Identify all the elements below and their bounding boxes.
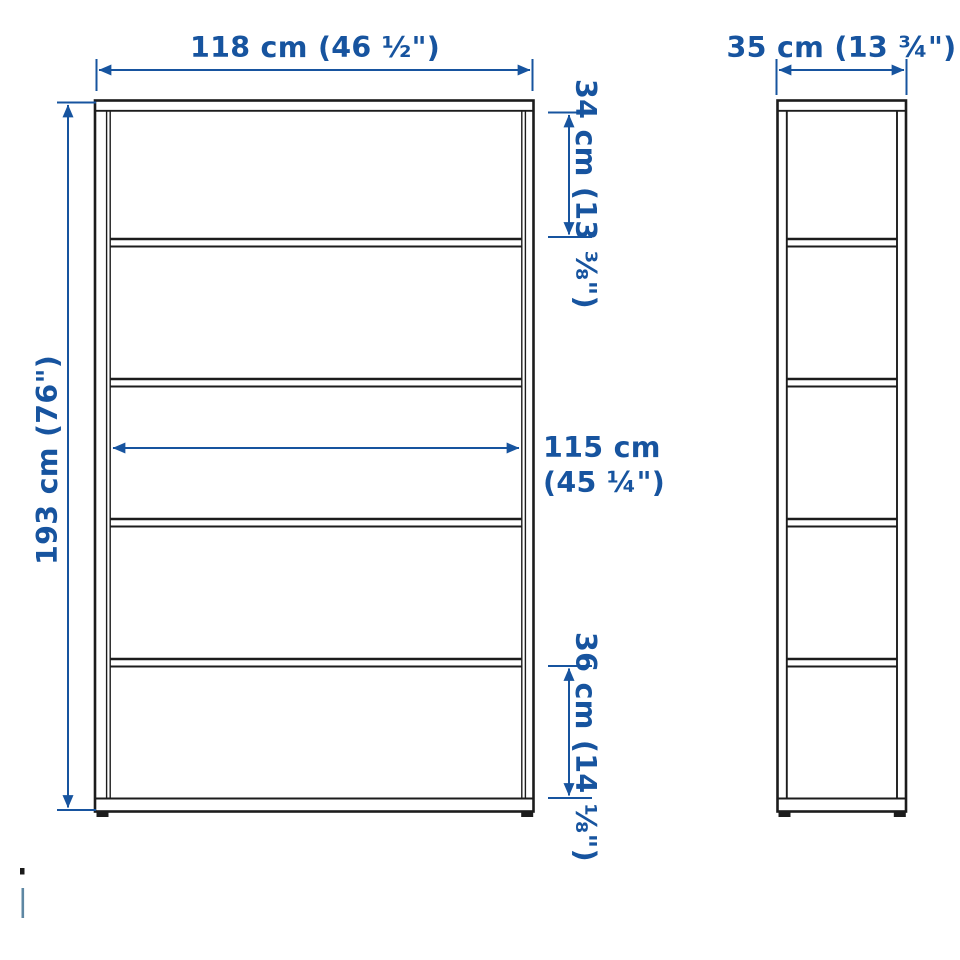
inner-width-label-line2: (45 ¼") <box>543 466 665 499</box>
dimension-bottom-compartment: 36 cm (14 ⅛") <box>548 632 602 862</box>
bookcase-dimension-diagram: 118 cm (46 ½") 35 cm (13 ¾") 193 cm (76"… <box>0 0 960 960</box>
dimension-top-compartment: 34 cm (13 ⅜") <box>548 79 602 309</box>
front-view <box>95 101 534 818</box>
stray-line <box>22 888 25 918</box>
side-view <box>778 101 907 818</box>
side-view-outline <box>778 101 907 812</box>
front-right-foot <box>521 811 533 817</box>
side-left-foot <box>779 811 791 817</box>
front-left-foot <box>97 811 109 817</box>
total-height-label: 193 cm (76") <box>31 355 64 565</box>
side-depth-label: 35 cm (13 ¾") <box>727 31 957 64</box>
dimension-side-depth: 35 cm (13 ¾") <box>727 31 957 95</box>
dimension-total-height: 193 cm (76") <box>31 103 96 811</box>
front-width-label: 118 cm (46 ½") <box>190 31 440 64</box>
product-dimension-image: 118 cm (46 ½") 35 cm (13 ¾") 193 cm (76"… <box>0 0 960 960</box>
inner-width-label-line1: 115 cm <box>543 431 661 464</box>
dimension-front-width: 118 cm (46 ½") <box>97 31 533 91</box>
front-view-outline <box>95 101 534 812</box>
bottom-compartment-label: 36 cm (14 ⅛") <box>569 632 602 862</box>
side-right-foot <box>894 811 906 817</box>
stray-dot <box>20 868 25 875</box>
top-compartment-label: 34 cm (13 ⅜") <box>569 79 602 309</box>
